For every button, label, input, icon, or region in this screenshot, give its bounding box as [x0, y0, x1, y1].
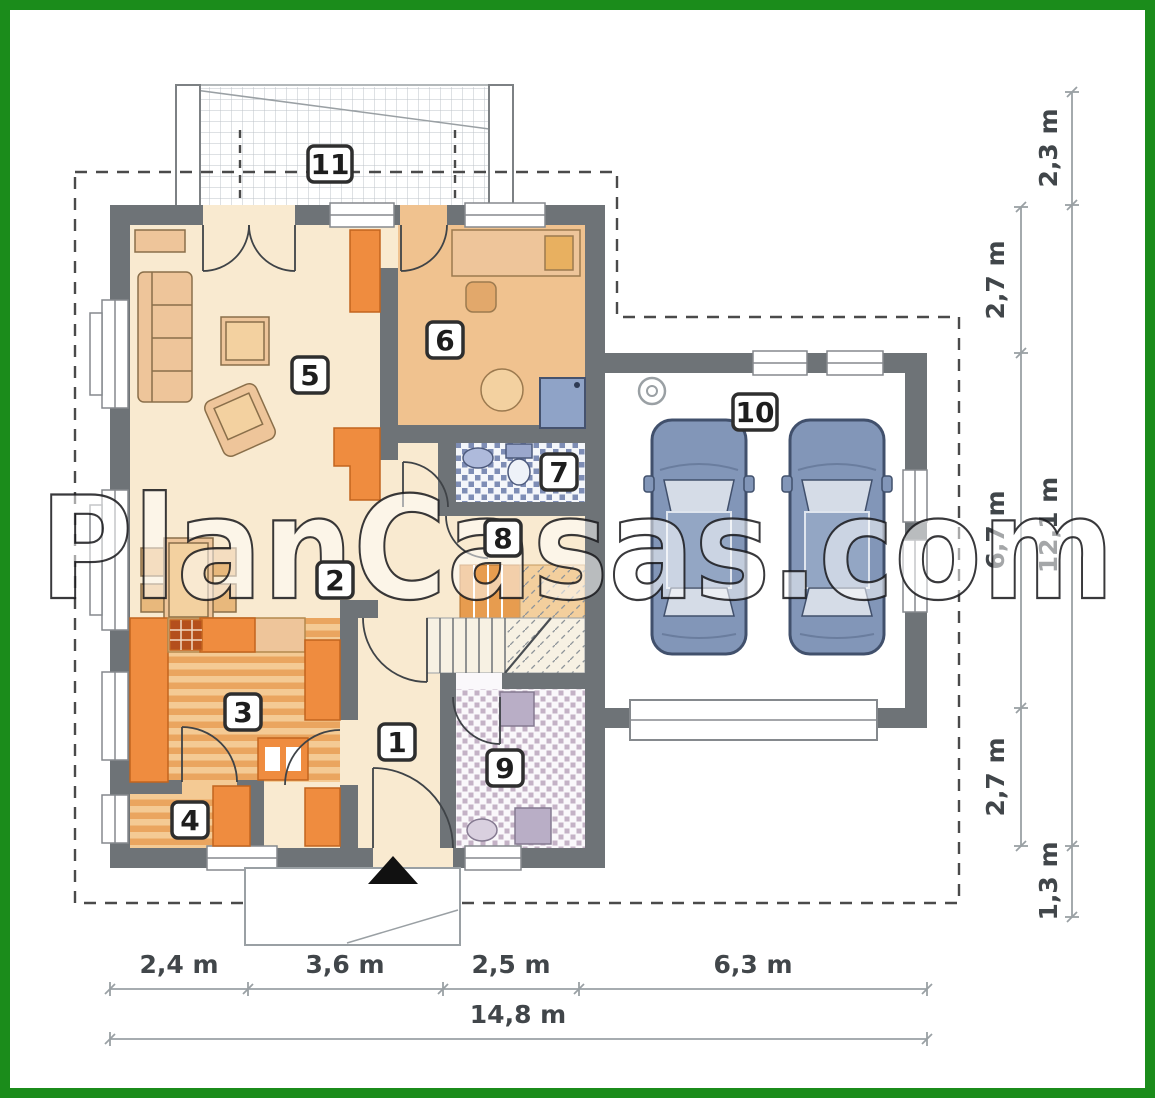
window — [102, 795, 128, 843]
dimensions-bottom: 2,4 m 3,6 m 2,5 m 6,3 m 14,8 m — [105, 950, 932, 1046]
room-badge-7: 7 — [541, 454, 577, 490]
room-badge-10: 10 — [733, 394, 777, 430]
desk-chair — [466, 282, 496, 312]
pantry-cabinet — [213, 786, 250, 846]
svg-text:3: 3 — [233, 696, 252, 729]
room-badge-6: 6 — [427, 322, 463, 358]
window — [330, 203, 394, 227]
desk-monitor — [545, 236, 573, 270]
garage-window — [827, 351, 883, 375]
porch — [245, 868, 460, 945]
dim-label: 2,3 m — [1034, 108, 1063, 187]
window — [90, 300, 128, 408]
dim-label: 2,5 m — [471, 950, 550, 979]
room-badge-8: 8 — [485, 520, 521, 556]
kitchen-counter — [130, 618, 168, 782]
washing-machine — [500, 692, 534, 726]
window — [207, 846, 277, 870]
green-photo-frame: 2,4 m 3,6 m 2,5 m 6,3 m 14,8 m 2,7 m 6,7… — [0, 0, 1155, 1098]
room-badge-2: 2 — [317, 562, 353, 598]
window — [102, 672, 128, 760]
coffee-table — [221, 317, 269, 365]
terrace-column — [176, 85, 200, 207]
room-badge-5: 5 — [292, 357, 328, 393]
svg-text:2: 2 — [325, 564, 344, 597]
round-table — [481, 369, 523, 411]
kitchen-stool — [258, 738, 308, 780]
room-badge-4: 4 — [172, 802, 208, 838]
svg-text:11: 11 — [311, 148, 350, 181]
dim-label: 1,3 m — [1034, 841, 1063, 920]
dim-label-total: 14,8 m — [470, 1000, 566, 1029]
watermark-text: PlanCasas.com — [40, 467, 1115, 632]
svg-text:10: 10 — [736, 396, 775, 429]
kitchen-cabinet — [305, 788, 340, 846]
svg-text:1: 1 — [387, 726, 406, 759]
sideboard — [135, 230, 185, 252]
room-badge-1: 1 — [379, 724, 415, 760]
garage-window — [753, 351, 807, 375]
room-badge-9: 9 — [487, 750, 523, 786]
sofa — [138, 272, 192, 402]
svg-text:6: 6 — [435, 324, 454, 357]
washbasin — [467, 819, 497, 841]
tv-cabinet — [350, 230, 380, 312]
svg-text:4: 4 — [180, 804, 199, 837]
window — [465, 846, 521, 870]
floor-plan-canvas: 2,4 m 3,6 m 2,5 m 6,3 m 14,8 m 2,7 m 6,7… — [10, 10, 1145, 1088]
shower-cabin — [540, 378, 585, 428]
window — [465, 203, 545, 227]
floor-drain — [639, 378, 665, 404]
garage-door — [630, 700, 877, 740]
svg-text:8: 8 — [493, 522, 512, 555]
dim-label: 2,4 m — [139, 950, 218, 979]
svg-text:7: 7 — [549, 456, 568, 489]
room-badge-3: 3 — [225, 694, 261, 730]
svg-text:5: 5 — [300, 359, 319, 392]
dim-label: 3,6 m — [305, 950, 384, 979]
room-badge-11: 11 — [308, 146, 352, 182]
kitchen-counter — [305, 640, 340, 720]
dim-label: 2,7 m — [981, 737, 1010, 816]
dim-label: 2,7 m — [981, 240, 1010, 319]
dim-label: 6,3 m — [713, 950, 792, 979]
washbasin — [463, 448, 493, 468]
terrace-column — [489, 85, 513, 207]
svg-text:9: 9 — [495, 752, 514, 785]
shower-tray — [515, 808, 551, 844]
